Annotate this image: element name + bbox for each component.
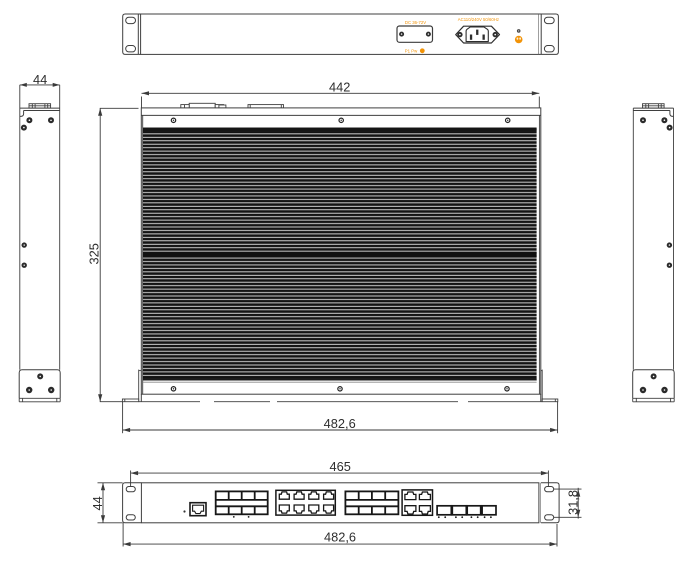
svg-text:442: 442 — [329, 80, 350, 95]
svg-text:P1 Pw: P1 Pw — [405, 49, 418, 54]
svg-text:AC110/240V 50/60Hz: AC110/240V 50/60Hz — [458, 17, 499, 22]
svg-text:31,8: 31,8 — [565, 490, 580, 515]
svg-text:482,6: 482,6 — [324, 530, 356, 545]
svg-text:465: 465 — [330, 459, 351, 474]
svg-text:325: 325 — [87, 243, 102, 264]
svg-text:DC 36-72V: DC 36-72V — [405, 20, 426, 25]
svg-text:44: 44 — [33, 72, 47, 87]
svg-text:482,6: 482,6 — [324, 416, 356, 431]
svg-text:44: 44 — [90, 496, 105, 510]
